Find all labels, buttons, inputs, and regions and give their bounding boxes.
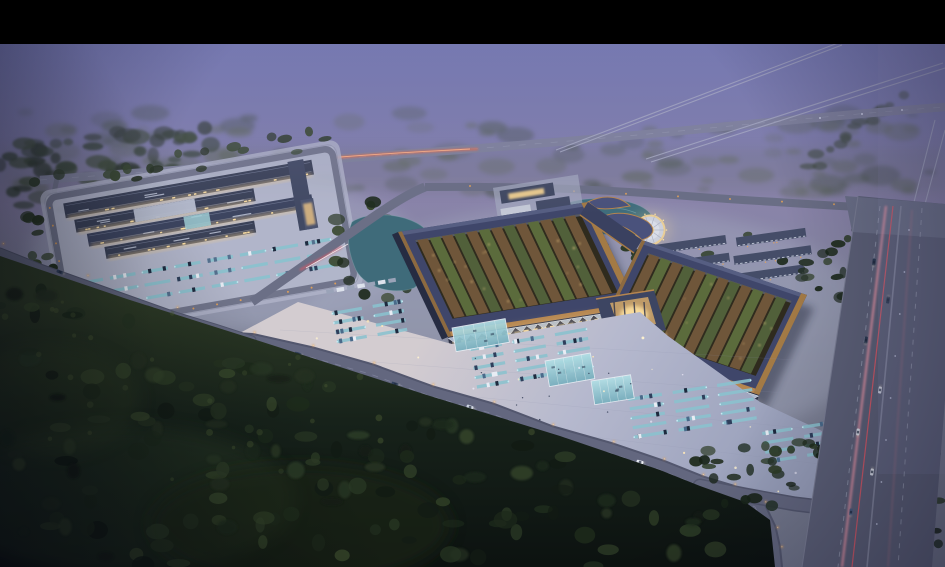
atmosphere [0,0,945,567]
rendering-canvas [0,0,945,567]
aerial-scene [0,0,945,567]
corner-shadow [0,0,945,567]
letterbox-top-bar [0,0,945,44]
